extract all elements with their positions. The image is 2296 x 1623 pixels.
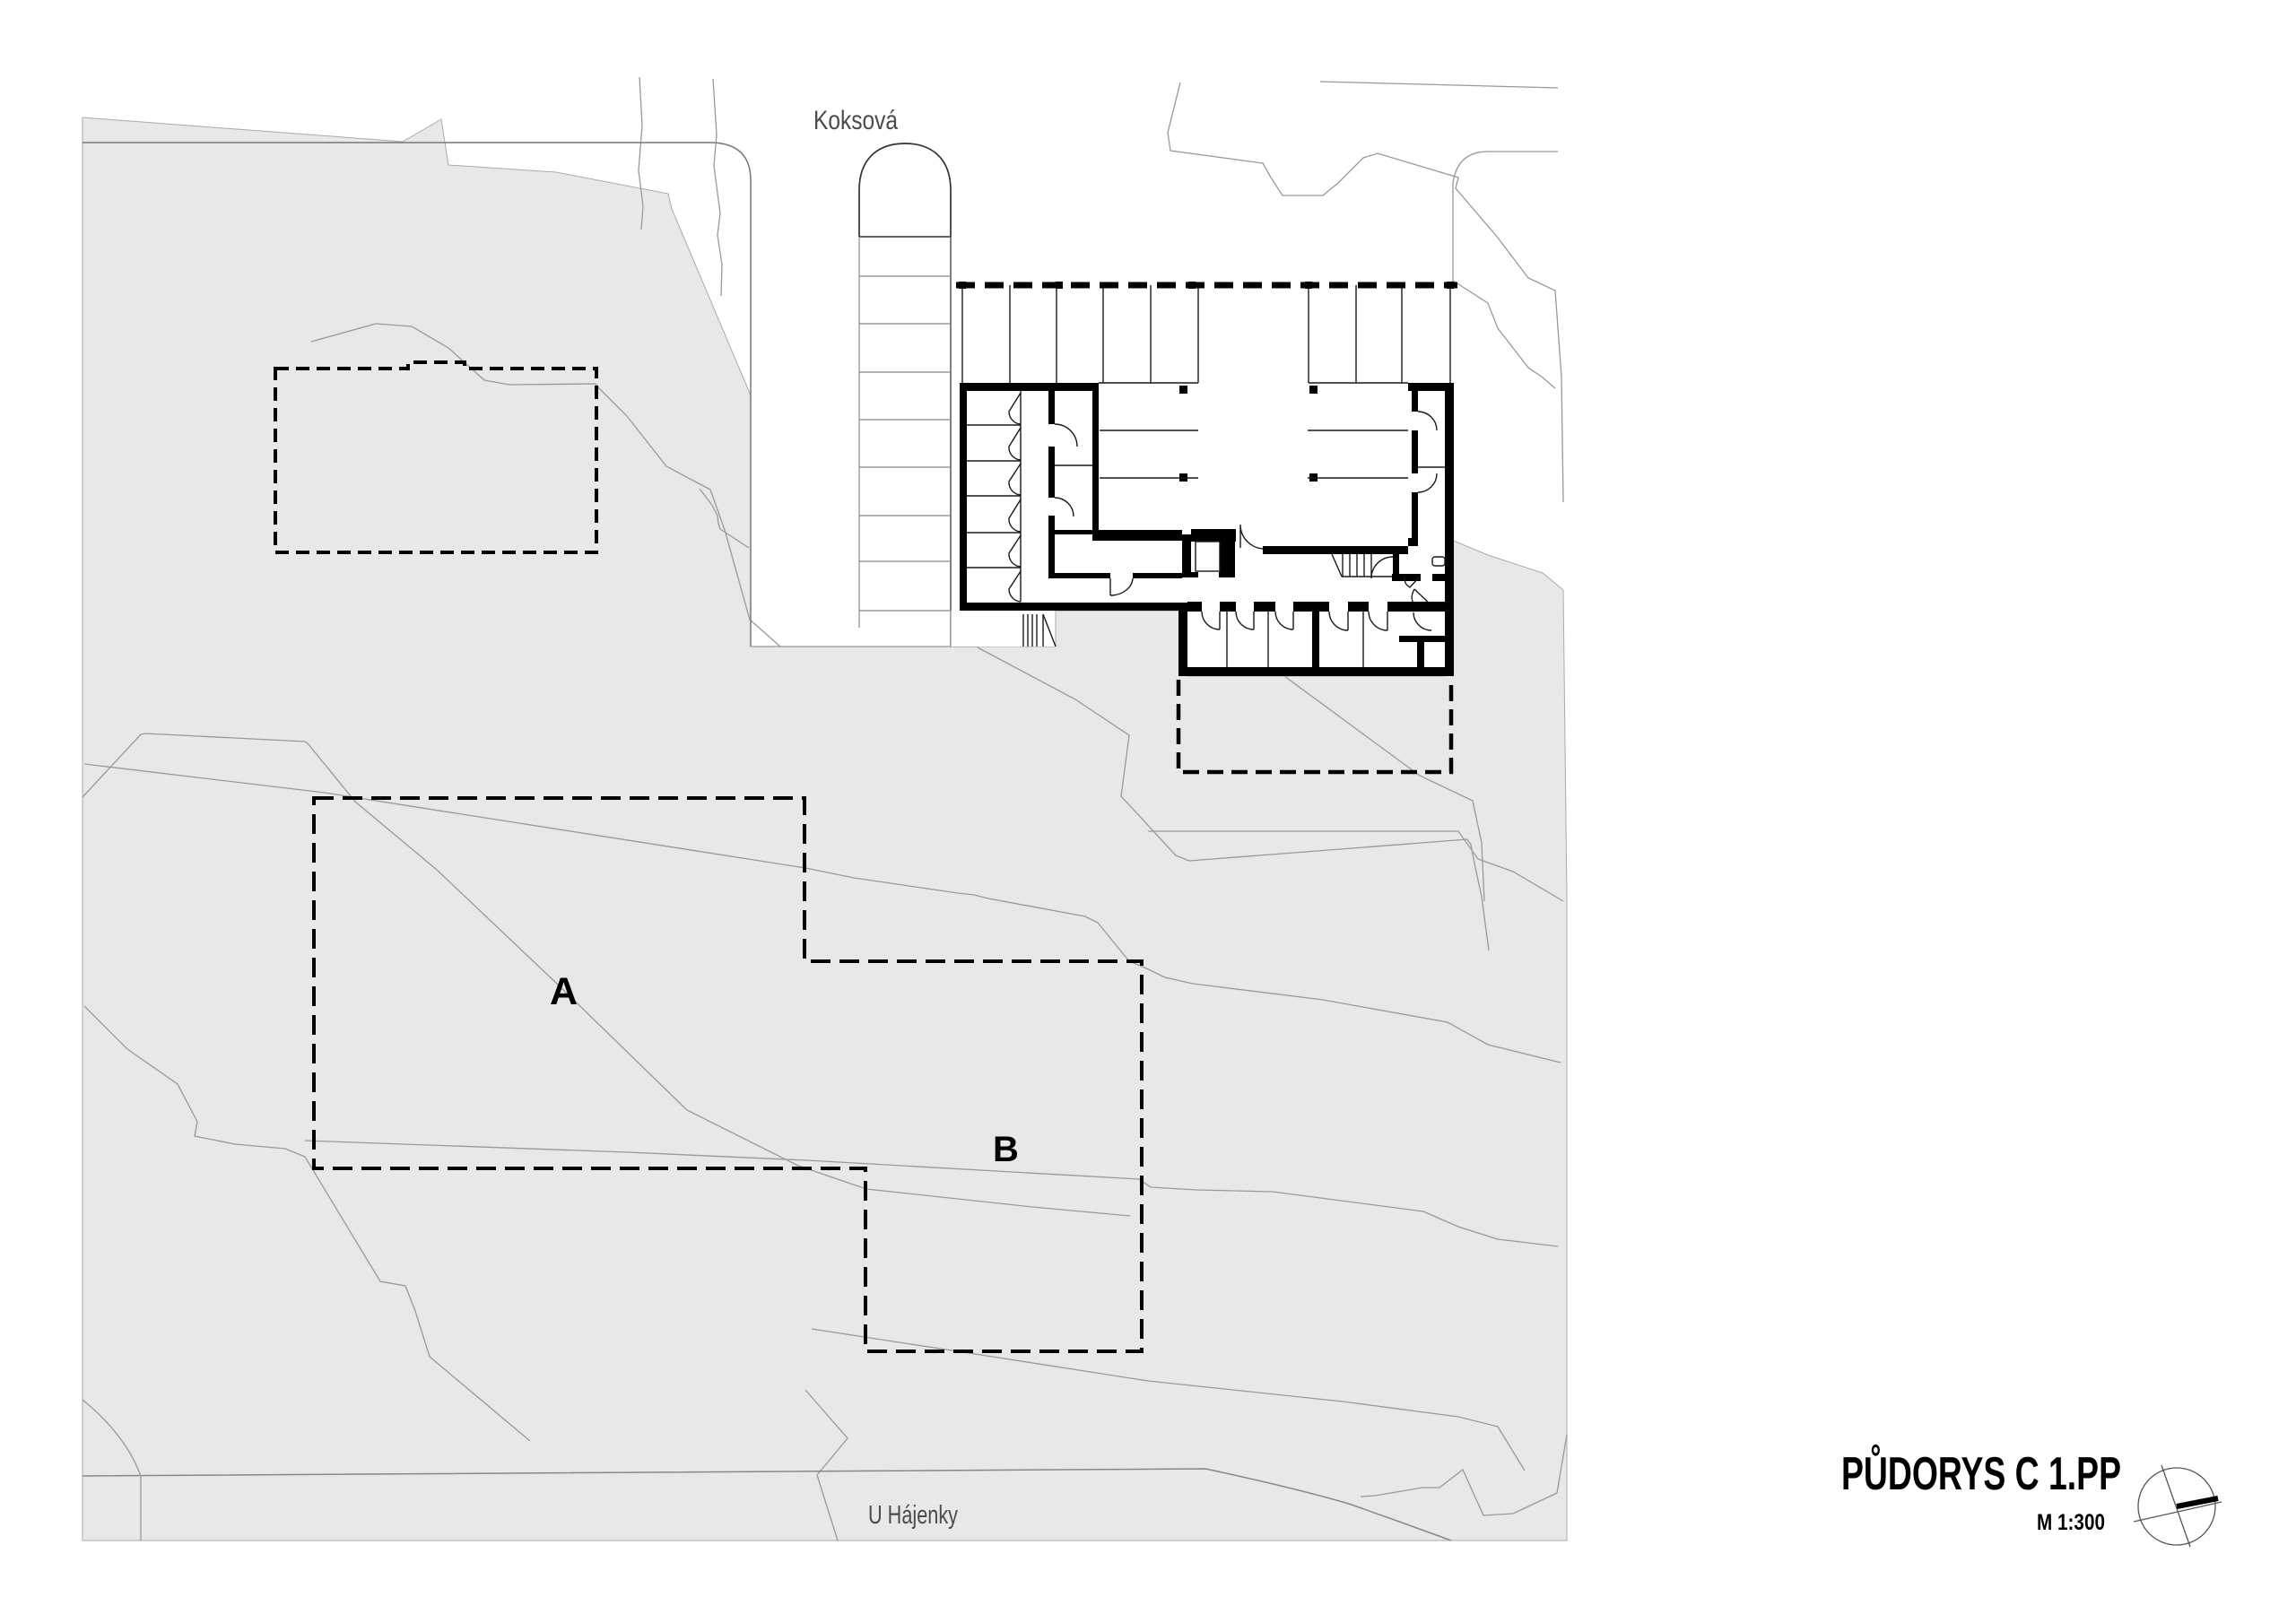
- svg-text:PŮDORYS C 1.PP: PŮDORYS C 1.PP: [1841, 1444, 2121, 1500]
- svg-text:U Hájenky: U Hájenky: [868, 1501, 958, 1530]
- svg-text:B: B: [993, 1130, 1019, 1169]
- svg-text:M 1:300: M 1:300: [2037, 1510, 2105, 1535]
- svg-text:A: A: [550, 970, 578, 1013]
- svg-text:Koksová: Koksová: [813, 106, 898, 135]
